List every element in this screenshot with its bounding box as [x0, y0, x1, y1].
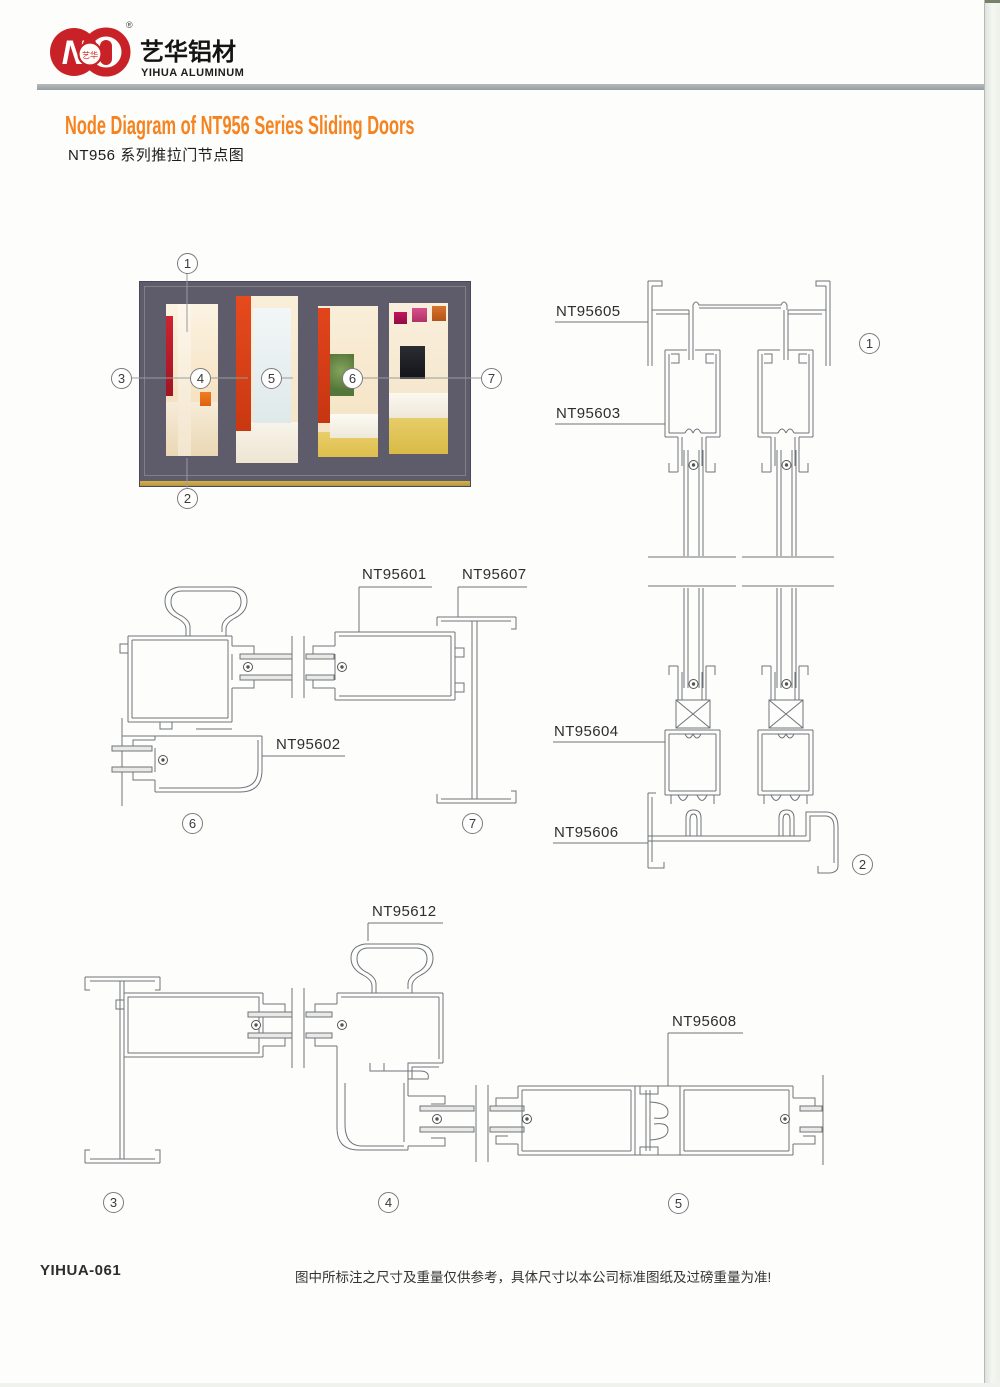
detail-marker-2: 2: [852, 854, 873, 875]
profile-sash-stile-6: [120, 636, 254, 722]
part-label-nt95612: NT95612: [372, 903, 437, 920]
profile-nt95603-sash-top: [665, 350, 813, 472]
page-code: YIHUA-061: [40, 1262, 121, 1279]
profile-nt95604-sash-bottom: [665, 666, 813, 804]
glass-units-vertical: [648, 450, 834, 689]
glass-unit-left: [112, 746, 152, 772]
part-label-nt95604: NT95604: [554, 723, 619, 740]
profile-nt95607-jamb: [437, 617, 516, 803]
profile-sash-stile-4: [315, 993, 445, 1150]
detail-marker-5: 5: [668, 1193, 689, 1214]
disclaimer-text: 图中所标注之尺寸及重量仅供参考，具体尺寸以本公司标准图纸及过磅重量为准!: [295, 1266, 771, 1286]
detail-marker-3: 3: [103, 1192, 124, 1213]
glass-unit-mid: [240, 636, 334, 698]
node-diagrams: [0, 0, 1000, 1387]
catalog-page: N 艺华 ® 艺华铝材 YIHUA ALUMINUM Node Diagram …: [0, 0, 1000, 1387]
detail-marker-6: 6: [182, 813, 203, 834]
profile-nt95601-sash-stile: [313, 632, 464, 700]
section-horizontal-detail-3-4-5: [85, 923, 823, 1165]
scan-edge-bottom: [0, 1383, 1000, 1387]
profile-nt95608-coupling: [496, 1086, 815, 1155]
detail-marker-7: 7: [462, 813, 483, 834]
photo-callout-5: 5: [261, 368, 282, 389]
leader-lines-bottom: [368, 923, 743, 1086]
profile-nt95606-bottom-track: [648, 793, 838, 873]
part-label-nt95606: NT95606: [554, 824, 619, 841]
leader-lines-right: [553, 322, 665, 843]
profile-interlock-handle-6: [165, 587, 247, 636]
profile-nt95612-handle: [351, 944, 433, 993]
part-label-nt95603: NT95603: [556, 405, 621, 422]
scan-edge-corner: [985, 0, 1000, 3]
detail-marker-1: 1: [859, 333, 880, 354]
glass-unit-3-4: [248, 988, 332, 1068]
leader-lines-mid: [262, 587, 527, 756]
detail-marker-4: 4: [378, 1192, 399, 1213]
section-horizontal-detail-6-7: [112, 587, 527, 806]
photo-callout-6: 6: [342, 368, 363, 389]
photo-callout-3: 3: [111, 368, 132, 389]
scan-edge-right: [984, 0, 1000, 1387]
part-label-nt95607: NT95607: [462, 566, 527, 583]
part-label-nt95602: NT95602: [276, 736, 341, 753]
profile-nt95605-head-track: [648, 281, 830, 366]
profile-sash-stile-3: [116, 993, 285, 1057]
glass-unit-5-right: [800, 1075, 823, 1165]
photo-callout-4: 4: [190, 368, 211, 389]
section-vertical-detail-1-2: [553, 281, 838, 873]
photo-callout-2: 2: [177, 488, 198, 509]
part-label-nt95605: NT95605: [556, 303, 621, 320]
photo-callout-7: 7: [481, 368, 502, 389]
profile-jamb-3: [85, 977, 160, 1163]
part-label-nt95608: NT95608: [672, 1013, 737, 1030]
part-label-nt95601: NT95601: [362, 566, 427, 583]
photo-callout-1: 1: [177, 253, 198, 274]
profile-nt95602-bottom-rail: [122, 718, 262, 806]
photo-callout-lines: [131, 273, 481, 488]
